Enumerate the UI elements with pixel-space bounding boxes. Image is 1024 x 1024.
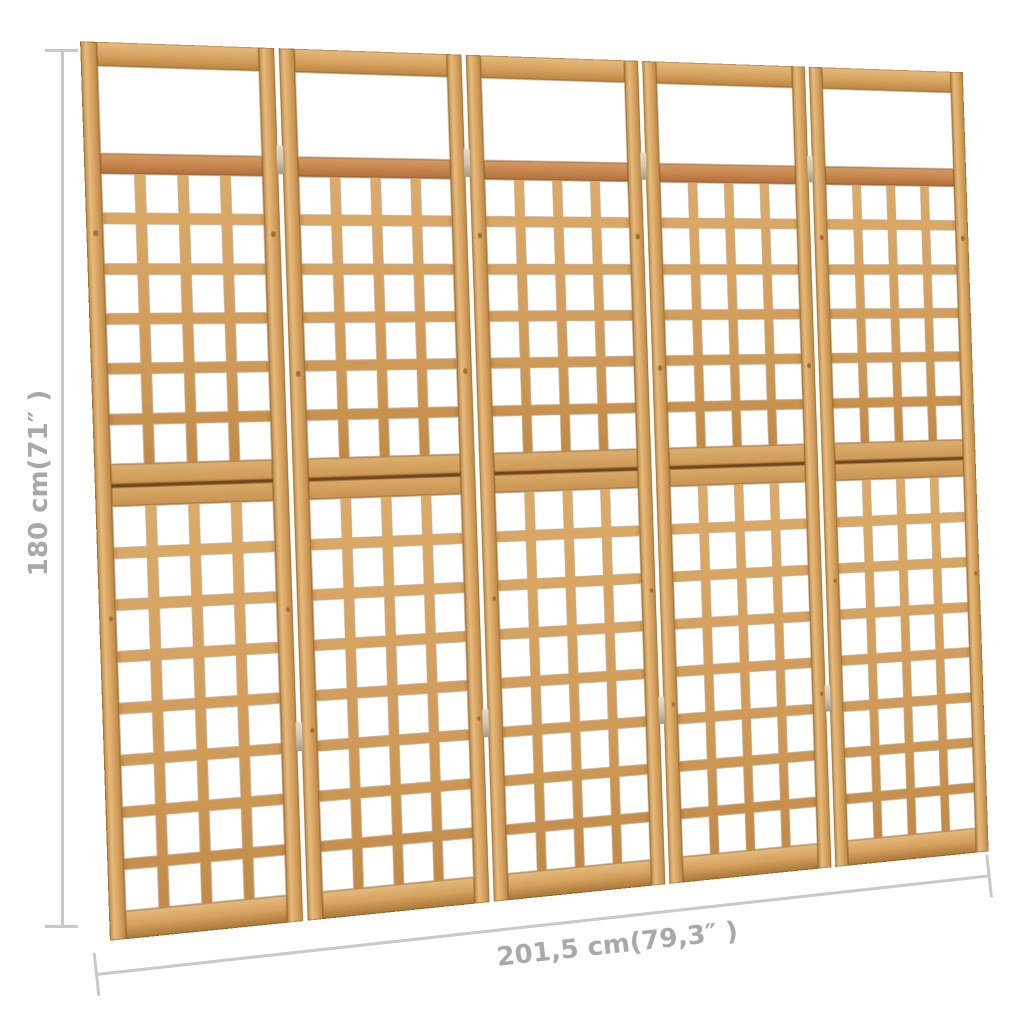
lattice-hole (866, 362, 894, 398)
lattice-hole (189, 224, 223, 264)
lattice-hole (672, 533, 702, 573)
lattice-upper (826, 184, 963, 443)
lattice-hole (827, 229, 855, 265)
lattice-hole (205, 706, 239, 750)
middle-rail (834, 440, 963, 481)
lattice-hole (737, 319, 766, 356)
lattice-hole (360, 795, 393, 838)
lattice-hole (491, 368, 522, 406)
lattice-hole (703, 365, 732, 402)
lattice-hole (489, 321, 520, 359)
lattice-hole (116, 608, 151, 652)
lattice-hole (580, 729, 611, 770)
lattice-lower (309, 494, 474, 892)
lattice-hole (161, 657, 196, 701)
lattice-hole (391, 495, 423, 536)
lattice-hole (486, 226, 517, 264)
accent-rail (825, 167, 954, 187)
width-dimension-cap-left (93, 953, 101, 996)
lattice-hole (913, 750, 940, 789)
lattice-hole (350, 497, 383, 538)
lattice-hole (106, 324, 141, 364)
lattice-hole (842, 663, 870, 702)
lattice-hole (872, 524, 900, 562)
lattice-hole (383, 274, 415, 313)
lattice-lower (836, 476, 976, 841)
lattice-hole (207, 757, 241, 801)
lattice-hole (202, 604, 236, 647)
lattice-hole (299, 176, 332, 215)
lattice-hole (168, 862, 203, 907)
lattice-hole (246, 652, 280, 695)
lattice-hole (773, 319, 802, 355)
lattice-hole (188, 175, 222, 215)
lattice-hole (108, 374, 143, 415)
lattice-hole (747, 623, 776, 662)
lattice-upper (299, 176, 460, 458)
lattice-hole (620, 821, 650, 862)
lattice-hole (714, 719, 743, 759)
lattice-hole (501, 686, 532, 727)
lattice-upper (101, 173, 272, 464)
lattice-hole (313, 598, 346, 640)
lattice-hole (380, 178, 412, 217)
lattice-hole (420, 178, 452, 217)
lattice-hole (910, 659, 937, 698)
lattice-upper (485, 179, 637, 453)
lattice-hole (303, 322, 336, 361)
lattice-hole (305, 371, 338, 410)
lattice-hole (500, 637, 531, 678)
lattice-hole (740, 409, 769, 446)
lattice-hole (498, 589, 529, 630)
lattice-hole (602, 274, 632, 311)
open-window (481, 78, 627, 163)
lattice-hole (545, 828, 576, 870)
lattice-hole (485, 179, 516, 217)
lattice-hole (744, 530, 773, 569)
lattice-hole (505, 783, 536, 825)
lattice-hole (776, 408, 805, 445)
lattice-hole (248, 703, 282, 746)
lattice-hole (942, 611, 969, 649)
lattice-hole (678, 722, 708, 762)
lattice-hole (575, 585, 606, 625)
lattice-hole (198, 502, 232, 544)
lattice-hole (581, 777, 612, 818)
lattice-hole (103, 224, 138, 264)
lattice-hole (611, 535, 641, 575)
lattice-hole (698, 228, 727, 265)
lattice-hole (382, 226, 414, 265)
accent-rail (100, 153, 262, 175)
lattice-hole (746, 576, 775, 615)
lattice-hole (400, 792, 432, 835)
hinge (807, 156, 813, 183)
lattice-hole (437, 690, 469, 732)
lattice-hole (352, 547, 385, 589)
lattice-hole (314, 648, 347, 691)
lattice-hole (876, 661, 904, 700)
lattice-hole (156, 504, 191, 547)
lattice-hole (604, 320, 634, 357)
lattice-hole (612, 583, 642, 623)
lattice-hole (233, 274, 267, 313)
lattice-hole (114, 557, 149, 600)
lattice-hole (122, 815, 157, 860)
lattice-hole (396, 644, 428, 686)
lattice-hole (870, 478, 898, 516)
lattice-hole (439, 739, 471, 781)
lattice-hole (354, 596, 387, 638)
lattice-hole (902, 405, 929, 441)
height-dimension-line (61, 50, 64, 927)
lattice-hole (935, 405, 962, 441)
lattice-hole (101, 173, 136, 214)
lattice-hole (753, 809, 782, 849)
lattice-hole (837, 526, 865, 564)
lattice-hole (526, 274, 557, 312)
lattice-hole (873, 570, 901, 608)
lattice-hole (713, 672, 742, 712)
trellis-panel (642, 61, 831, 884)
lattice-hole (506, 832, 537, 874)
lattice-hole (497, 540, 528, 581)
hinge (296, 722, 303, 752)
middle-rail (111, 460, 274, 507)
lattice-hole (204, 655, 238, 698)
lattice-hole (860, 185, 888, 221)
lattice-hole (318, 748, 351, 791)
trellis-panel (809, 67, 989, 867)
lattice-hole (899, 318, 926, 354)
lattice-hole (915, 795, 942, 834)
lattice-hole (235, 323, 269, 363)
accent-rail (484, 160, 628, 181)
accent-rail (298, 157, 451, 179)
lattice-hole (563, 227, 594, 264)
lattice-hole (495, 492, 526, 532)
lattice-hole (153, 423, 188, 464)
lattice-hole (704, 410, 733, 447)
lattice-lower (670, 482, 817, 857)
lattice-hole (150, 323, 185, 363)
lattice-hole (840, 617, 868, 656)
lattice-hole (430, 494, 462, 535)
lattice-hole (771, 274, 800, 310)
width-dimension-cap-right (985, 854, 993, 897)
lattice-hole (578, 681, 609, 722)
open-window (295, 72, 450, 160)
lattice-hole (774, 363, 803, 400)
lattice-hole (663, 274, 693, 311)
open-window (97, 66, 261, 157)
lattice-hole (912, 704, 939, 743)
lattice-hole (609, 488, 639, 528)
lattice-hole (734, 228, 763, 264)
lattice-hole (707, 484, 736, 523)
lattice-hole (749, 670, 778, 710)
width-dimension-label: 201,5 cm(79,3″ ) (495, 916, 739, 972)
lattice-hole (601, 227, 631, 264)
lattice-hole (829, 274, 857, 310)
lattice-hole (528, 320, 559, 358)
lattice-hole (605, 366, 635, 404)
lattice-hole (243, 551, 277, 593)
lattice-hole (666, 365, 696, 402)
lattice-hole (253, 855, 287, 899)
lattice-hole (358, 745, 391, 788)
lattice-hole (750, 716, 779, 756)
lattice-hole (432, 543, 464, 584)
lattice-hole (209, 808, 243, 852)
lattice-hole (321, 848, 354, 892)
lattice-hole (523, 180, 554, 218)
lattice-hole (700, 274, 729, 311)
lattice-hole (906, 523, 933, 561)
trellis-divider (80, 41, 989, 941)
lattice-hole (599, 181, 629, 218)
lattice-hole (948, 792, 975, 831)
lattice-hole (392, 545, 424, 586)
lattice-hole (786, 714, 815, 754)
lattice-hole (879, 752, 907, 791)
hinge (276, 145, 283, 174)
lattice-hole (681, 816, 711, 857)
lattice-hole (385, 322, 417, 361)
lattice-hole (534, 490, 565, 530)
height-dimension-cap-top (45, 49, 78, 52)
lattice-hole (939, 521, 966, 559)
lattice-hole (341, 225, 374, 264)
lattice-hole (944, 657, 971, 695)
lattice-hole (932, 317, 959, 352)
lattice-hole (311, 548, 344, 590)
lattice-hole (930, 230, 957, 265)
lattice-hole (768, 183, 797, 219)
lattice-hole (148, 274, 183, 314)
lattice-hole (426, 369, 458, 408)
lattice-hole (660, 182, 690, 219)
lattice-hole (166, 811, 201, 855)
lattice-hole (238, 421, 272, 461)
lattice-hole (355, 646, 388, 688)
lattice-hole (344, 322, 377, 361)
lattice-hole (422, 226, 454, 264)
lattice-hole (868, 406, 896, 442)
lattice-hole (789, 806, 818, 846)
hinge (482, 709, 489, 738)
lattice-upper (660, 182, 804, 448)
lattice-hole (783, 621, 812, 660)
height-dimension-cap-bottom (45, 925, 78, 928)
lattice-hole (164, 760, 199, 804)
lattice-hole (423, 274, 455, 312)
lattice-hole (529, 367, 560, 405)
lattice-hole (232, 225, 266, 264)
lattice-hole (897, 274, 924, 309)
lattice-hole (537, 587, 568, 628)
lattice-hole (826, 184, 854, 220)
middle-rail (494, 449, 639, 493)
lattice-hole (784, 667, 813, 706)
lattice-hole (675, 627, 705, 667)
product-dimension-diagram: 180 cm(71″ ) 201,5 cm(79,3″ ) (0, 0, 1024, 1024)
lattice-hole (307, 419, 340, 459)
lattice-hole (839, 572, 867, 611)
lattice-hole (676, 674, 706, 714)
lattice-hole (752, 763, 781, 803)
lattice-lower (112, 501, 286, 911)
lattice-hole (711, 625, 740, 665)
lattice-lower (495, 488, 651, 874)
lattice-hole (309, 498, 342, 540)
lattice-hole (878, 707, 906, 746)
lattice-hole (200, 553, 234, 596)
lattice-hole (191, 274, 225, 314)
lattice-hole (845, 755, 873, 794)
lattice-hole (357, 696, 390, 738)
hinge (825, 685, 831, 712)
lattice-hole (386, 369, 418, 408)
lattice-hole (572, 489, 603, 529)
lattice-hole (863, 274, 891, 310)
lattice-hole (665, 319, 695, 356)
lattice-hole (781, 574, 810, 613)
open-window (657, 83, 795, 166)
lattice-hole (488, 274, 519, 312)
lattice-hole (244, 602, 278, 645)
lattice-hole (210, 858, 244, 902)
lattice-hole (862, 229, 890, 265)
lattice-hole (442, 838, 474, 881)
lattice-hole (193, 323, 227, 363)
lattice-hole (346, 370, 379, 409)
lattice-hole (616, 678, 646, 719)
lattice-hole (145, 174, 180, 214)
lattice-hole (302, 274, 335, 313)
lattice-hole (708, 531, 737, 570)
lattice-hole (909, 613, 936, 651)
hinge (640, 152, 647, 180)
lattice-hole (535, 539, 566, 579)
lattice-hole (573, 537, 604, 577)
lattice-hole (112, 505, 147, 548)
lattice-hole (362, 845, 395, 888)
lattice-hole (159, 606, 194, 649)
lattice-hole (576, 633, 607, 674)
lattice-hole (503, 735, 534, 777)
lattice-hole (568, 367, 599, 405)
lattice-hole (881, 798, 909, 837)
lattice-hole (830, 318, 858, 354)
lattice-hole (151, 373, 186, 413)
lattice-hole (875, 615, 903, 654)
lattice-hole (435, 641, 467, 683)
lattice-hole (668, 411, 698, 448)
lattice-hole (124, 866, 159, 911)
lattice-hole (121, 763, 156, 807)
lattice-hole (194, 372, 228, 412)
lattice-hole (561, 180, 592, 218)
lattice-hole (717, 813, 746, 854)
lattice-hole (425, 321, 457, 360)
lattice-hole (543, 780, 574, 822)
lattice-hole (934, 361, 961, 397)
middle-rail (308, 454, 461, 499)
lattice-hole (492, 415, 523, 454)
lattice-hole (778, 482, 807, 521)
lattice-hole (701, 319, 730, 356)
lattice-hole (617, 726, 647, 767)
lattice-hole (696, 182, 725, 219)
trellis-panel (279, 48, 490, 920)
lattice-hole (542, 732, 573, 773)
lattice-hole (538, 635, 569, 676)
lattice-hole (894, 185, 921, 221)
lattice-hole (716, 766, 745, 806)
lattice-hole (947, 747, 974, 786)
lattice-hole (428, 416, 460, 455)
lattice-hole (402, 841, 434, 884)
lattice-hole (340, 177, 373, 216)
lattice-hole (673, 580, 703, 620)
middle-rail (669, 444, 806, 486)
lattice-hole (780, 528, 809, 567)
open-window (823, 89, 954, 169)
lattice-hole (316, 698, 349, 741)
lattice-hole (251, 804, 285, 848)
lattice-hole (670, 486, 700, 525)
height-dimension-label: 180 cm(71″ ) (24, 390, 54, 576)
trellis-panel (80, 41, 303, 941)
lattice-hole (843, 709, 871, 748)
lattice-hole (525, 227, 556, 265)
lattice-hole (787, 760, 816, 800)
lattice-hole (836, 480, 864, 518)
lattice-hole (743, 483, 772, 522)
lattice-hole (540, 683, 571, 724)
lattice-hole (162, 709, 197, 753)
lattice-hole (109, 424, 144, 465)
lattice-hole (569, 413, 600, 451)
lattice-hole (399, 742, 431, 784)
lattice-hole (619, 774, 649, 815)
lattice-hole (394, 594, 426, 636)
lattice-hole (531, 414, 562, 452)
lattice-hole (865, 318, 893, 354)
lattice-hole (230, 175, 264, 215)
lattice-hole (833, 407, 861, 443)
lattice-hole (434, 592, 466, 633)
lattice-hole (938, 476, 965, 514)
lattice-hole (300, 225, 333, 264)
lattice-hole (104, 274, 139, 314)
hinge (658, 696, 665, 724)
lattice-hole (739, 364, 768, 401)
lattice-hole (440, 788, 472, 830)
lattice-hole (237, 372, 271, 412)
hinge (464, 149, 471, 177)
trellis-panel (466, 55, 666, 902)
lattice-hole (119, 711, 154, 755)
lattice-hole (931, 274, 958, 309)
lattice-hole (566, 320, 597, 358)
lattice-hole (680, 769, 710, 810)
lattice-hole (945, 702, 972, 741)
lattice-hole (319, 798, 352, 841)
lattice-hole (196, 422, 230, 462)
